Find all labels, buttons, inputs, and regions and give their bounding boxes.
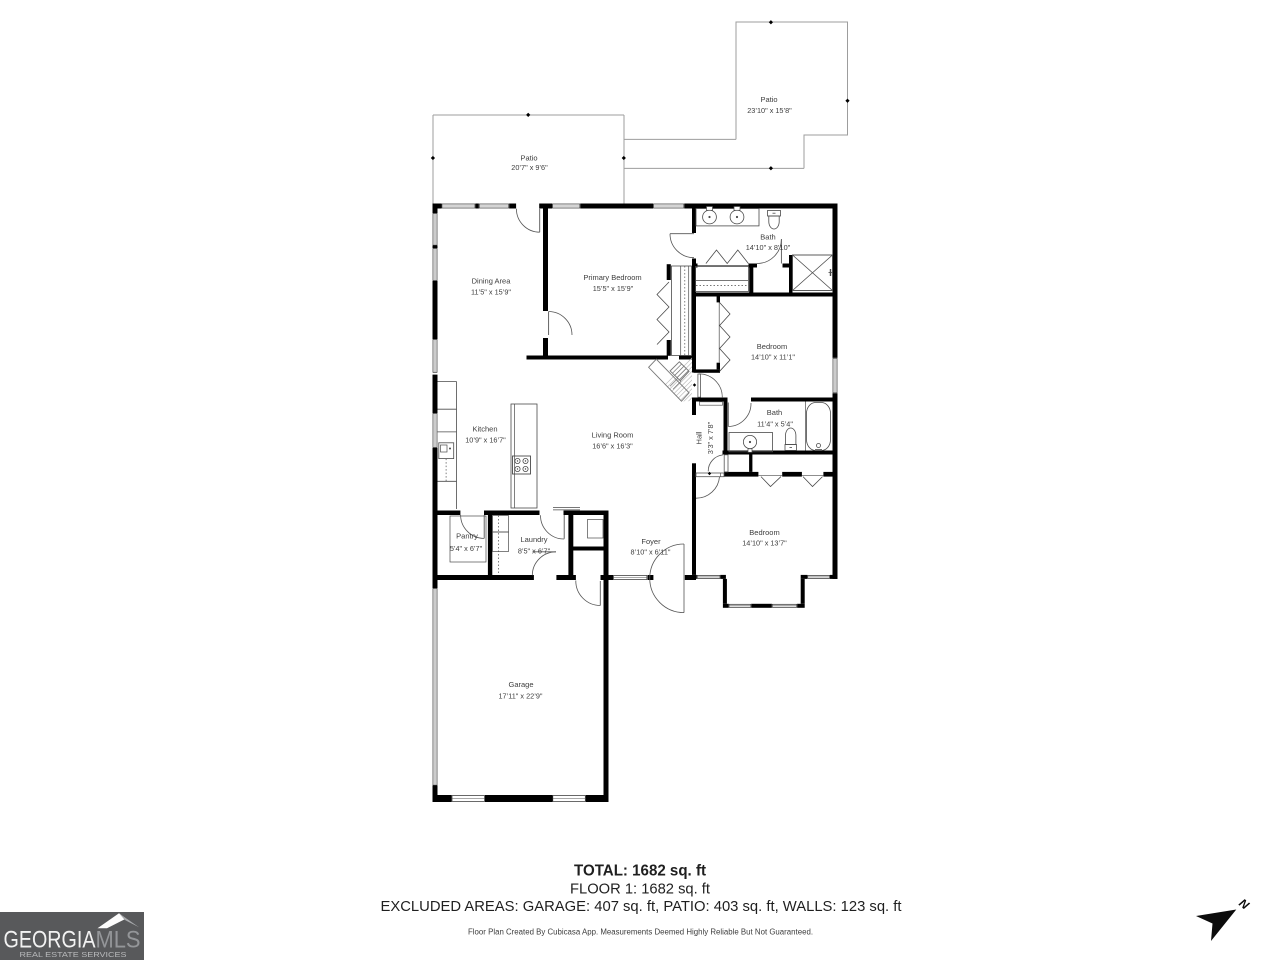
svg-text:Primary Bedroom: Primary Bedroom — [583, 273, 641, 282]
svg-text:Pantry: Pantry — [456, 532, 478, 541]
svg-text:23’10" x 15’8": 23’10" x 15’8" — [747, 106, 792, 115]
svg-text:Floor Plan Created By Cubicasa: Floor Plan Created By Cubicasa App. Meas… — [468, 928, 813, 937]
svg-text:14’10" x 11’1": 14’10" x 11’1" — [751, 353, 795, 362]
svg-text:3’3" x 7’8": 3’3" x 7’8" — [706, 421, 715, 454]
svg-text:17’11" x 22’9": 17’11" x 22’9" — [499, 692, 543, 701]
svg-text:Bath: Bath — [767, 408, 782, 417]
svg-text:Laundry: Laundry — [520, 535, 547, 544]
svg-text:Kitchen: Kitchen — [472, 425, 497, 434]
svg-text:Bedroom: Bedroom — [749, 528, 779, 537]
svg-text:5’4" x 6’7": 5’4" x 6’7" — [450, 544, 483, 553]
svg-text:Living Room: Living Room — [592, 431, 634, 440]
svg-text:14’10" x 8’10": 14’10" x 8’10" — [746, 243, 791, 252]
svg-text:10’9" x 16’7": 10’9" x 16’7" — [465, 436, 506, 445]
svg-text:Garage: Garage — [508, 680, 533, 689]
svg-text:14’10" x 13’7": 14’10" x 13’7" — [742, 539, 787, 548]
svg-text:Patio: Patio — [520, 154, 537, 163]
svg-text:20’7" x 9’6": 20’7" x 9’6" — [511, 163, 548, 172]
svg-text:Dining Area: Dining Area — [472, 277, 512, 286]
svg-text:EXCLUDED AREAS: GARAGE: 407 sq: EXCLUDED AREAS: GARAGE: 407 sq. ft, PATI… — [381, 898, 903, 915]
svg-text:FLOOR 1: 1682 sq. ft: FLOOR 1: 1682 sq. ft — [570, 881, 711, 898]
svg-text:11’5" x 15’9": 11’5" x 15’9" — [471, 288, 511, 297]
svg-text:Hall: Hall — [695, 431, 704, 444]
svg-text:Patio: Patio — [760, 95, 777, 104]
svg-text:11’4" x 5’4": 11’4" x 5’4" — [757, 420, 793, 429]
svg-text:MLS: MLS — [96, 927, 141, 954]
svg-text:GEORGIA: GEORGIA — [4, 927, 97, 954]
svg-text:16’6" x 16’3": 16’6" x 16’3" — [592, 442, 633, 451]
svg-text:REAL ESTATE SERVICES: REAL ESTATE SERVICES — [20, 952, 127, 959]
svg-text:Bath: Bath — [760, 233, 775, 242]
svg-text:TOTAL: 1682 sq. ft: TOTAL: 1682 sq. ft — [574, 863, 707, 880]
svg-text:Foyer: Foyer — [641, 537, 661, 546]
svg-text:8’5" x 6’7": 8’5" x 6’7" — [518, 547, 551, 556]
svg-text:15’5" x 15’9": 15’5" x 15’9" — [593, 284, 634, 293]
svg-text:8’10" x 6’11": 8’10" x 6’11" — [631, 548, 671, 557]
svg-text:Bedroom: Bedroom — [757, 342, 787, 351]
